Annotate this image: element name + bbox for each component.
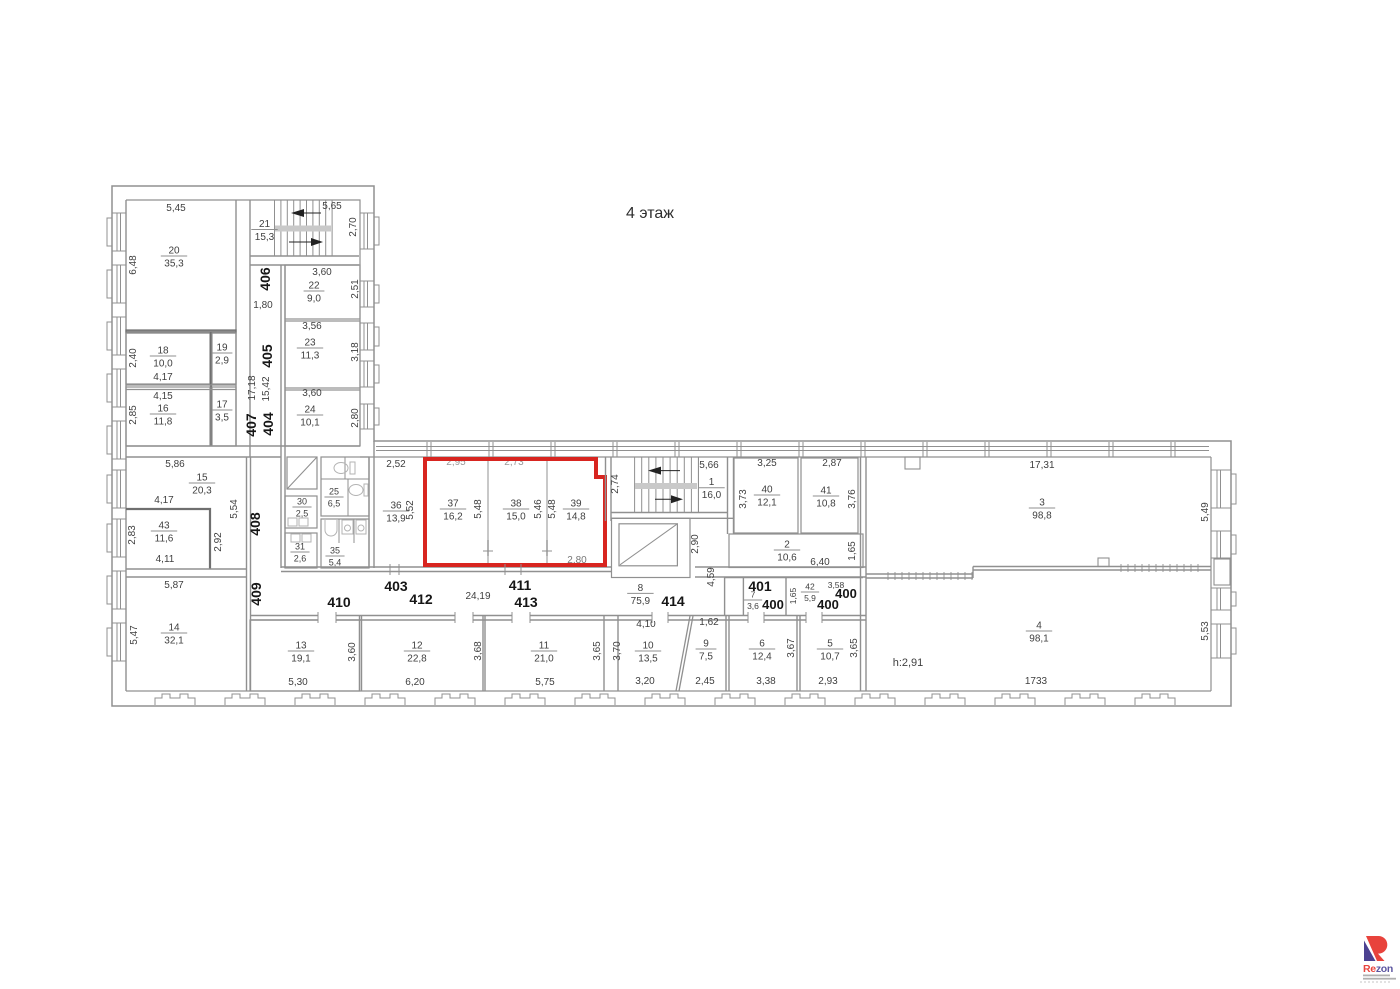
svg-text:10,1: 10,1 [300,418,320,429]
svg-text:2,40: 2,40 [128,348,139,368]
svg-text:6,40: 6,40 [810,557,830,568]
svg-text:1,65: 1,65 [847,541,858,561]
svg-text:10,7: 10,7 [820,652,840,663]
svg-text:3,25: 3,25 [757,458,777,469]
svg-text:5,49: 5,49 [1200,502,1211,522]
svg-text:3,60: 3,60 [312,267,332,278]
svg-text:9: 9 [703,639,709,650]
svg-text:42: 42 [805,582,815,592]
svg-text:17,31: 17,31 [1029,460,1054,471]
svg-text:3,18: 3,18 [350,342,361,362]
svg-text:404: 404 [260,412,276,436]
svg-text:5,75: 5,75 [535,677,555,688]
svg-text:7: 7 [751,590,756,600]
svg-text:3,38: 3,38 [756,676,776,687]
svg-text:11,6: 11,6 [155,534,174,545]
svg-text:8: 8 [638,583,644,594]
svg-text:410: 410 [327,594,351,610]
svg-text:6,5: 6,5 [328,499,341,509]
svg-text:3,70: 3,70 [612,641,623,661]
svg-text:408: 408 [247,512,263,536]
svg-text:98,1: 98,1 [1029,634,1049,645]
svg-text:12,1: 12,1 [757,498,777,509]
svg-text:20: 20 [168,246,180,257]
svg-text:35: 35 [330,546,340,556]
svg-text:403: 403 [384,578,408,594]
svg-text:25: 25 [329,487,339,497]
svg-text:407: 407 [243,413,259,437]
svg-text:411: 411 [509,577,532,593]
svg-text:2,83: 2,83 [127,525,138,545]
svg-text:2,93: 2,93 [818,676,838,687]
svg-text:40: 40 [761,485,773,496]
svg-text:5,52: 5,52 [405,500,416,520]
svg-text:11: 11 [539,641,550,652]
svg-text:5,54: 5,54 [229,499,240,519]
svg-text:24,19: 24,19 [465,591,490,602]
svg-text:38: 38 [510,499,522,510]
svg-text:405: 405 [259,344,275,368]
svg-text:6,48: 6,48 [128,255,139,275]
svg-text:4,17: 4,17 [153,372,173,383]
svg-text:3,20: 3,20 [635,676,655,687]
svg-text:17: 17 [216,400,228,411]
svg-text:36: 36 [390,501,402,512]
svg-text:19,1: 19,1 [291,654,311,665]
svg-text:2,45: 2,45 [695,676,715,687]
svg-text:13,5: 13,5 [638,654,658,665]
svg-text:4,59: 4,59 [706,567,717,587]
svg-text:2,85: 2,85 [128,405,139,425]
svg-text:10,6: 10,6 [777,553,797,564]
svg-text:4,15: 4,15 [153,391,173,402]
svg-text:2,52: 2,52 [386,459,406,470]
svg-text:5,48: 5,48 [473,499,484,519]
svg-text:16,2: 16,2 [443,512,463,523]
svg-text:1733: 1733 [1025,676,1048,687]
svg-text:3,65: 3,65 [849,638,860,658]
svg-text:24: 24 [304,405,316,416]
svg-text:1,65: 1,65 [788,587,798,604]
svg-text:10,8: 10,8 [816,499,836,510]
svg-text:412: 412 [409,591,433,607]
svg-text:14,8: 14,8 [566,512,586,523]
svg-text:2,70: 2,70 [348,217,359,237]
svg-text:5,65: 5,65 [322,201,342,212]
svg-text:3,56: 3,56 [302,321,322,332]
svg-text:5,53: 5,53 [1200,621,1211,641]
svg-text:12,4: 12,4 [752,652,772,663]
svg-text:2,92: 2,92 [213,532,224,552]
svg-text:21: 21 [259,219,271,230]
svg-text:22: 22 [308,281,320,292]
svg-text:17,18: 17,18 [247,375,258,400]
svg-text:4 этаж: 4 этаж [626,205,674,222]
svg-text:4: 4 [1036,621,1042,632]
svg-text:1,62: 1,62 [699,617,719,628]
svg-text:13: 13 [295,641,307,652]
svg-text:43: 43 [158,521,170,532]
svg-text:11,3: 11,3 [301,351,320,362]
svg-text:5,4: 5,4 [329,558,342,568]
svg-text:5,45: 5,45 [166,203,186,214]
svg-text:1,80: 1,80 [253,300,273,311]
svg-text:3,60: 3,60 [302,388,322,399]
svg-text:1: 1 [709,477,715,488]
svg-text:5,66: 5,66 [699,460,719,471]
svg-text:5: 5 [827,639,833,650]
svg-text:18: 18 [157,346,169,357]
svg-text:2,74: 2,74 [610,474,621,494]
svg-text:41: 41 [820,486,832,497]
svg-text:4,17: 4,17 [154,495,174,506]
svg-text:39: 39 [570,499,582,510]
svg-text:2,5: 2,5 [296,509,309,519]
svg-text:37: 37 [447,499,459,510]
svg-text:3: 3 [1039,498,1045,509]
svg-text:5,87: 5,87 [164,580,184,591]
svg-text:9,0: 9,0 [307,294,321,305]
svg-text:5,47: 5,47 [129,625,140,645]
svg-text:3,60: 3,60 [347,642,358,662]
svg-text:4,11: 4,11 [156,554,175,565]
svg-text:5,46: 5,46 [533,499,544,519]
svg-text:98,8: 98,8 [1032,511,1052,522]
svg-text:5,48: 5,48 [547,499,558,519]
svg-text:6,20: 6,20 [405,677,425,688]
svg-text:2,6: 2,6 [294,554,307,564]
svg-text:3,73: 3,73 [738,489,749,509]
svg-text:16,0: 16,0 [702,490,722,501]
svg-text:75,9: 75,9 [631,596,651,607]
svg-text:2,51: 2,51 [350,279,361,299]
svg-text:3,76: 3,76 [847,489,858,509]
svg-text:406: 406 [257,267,273,291]
svg-text:400: 400 [817,597,839,612]
svg-text:Rezon: Rezon [1363,963,1393,975]
svg-text:409: 409 [248,582,264,606]
svg-text:13,9: 13,9 [386,514,406,525]
svg-text:400: 400 [762,597,784,612]
svg-text:11,8: 11,8 [154,417,173,428]
svg-text:20,3: 20,3 [192,486,212,497]
svg-text:2,90: 2,90 [690,534,701,554]
svg-text:15,3: 15,3 [255,232,275,243]
svg-text:2,87: 2,87 [822,458,842,469]
svg-text:32,1: 32,1 [164,636,184,647]
svg-text:35,3: 35,3 [164,259,184,270]
svg-text:12: 12 [411,641,423,652]
svg-text:3,5: 3,5 [215,413,229,424]
svg-text:30: 30 [297,497,307,507]
svg-text:23: 23 [304,338,316,349]
svg-text:2: 2 [784,540,790,551]
svg-text:10: 10 [642,641,654,652]
svg-text:14: 14 [168,623,180,634]
svg-text:15: 15 [196,473,208,484]
svg-text:5,30: 5,30 [288,677,308,688]
svg-text:414: 414 [661,593,685,609]
svg-text:413: 413 [514,594,538,610]
svg-text:5,86: 5,86 [165,459,185,470]
svg-text:19: 19 [216,343,228,354]
svg-text:2,9: 2,9 [215,356,229,367]
svg-text:h:2,91: h:2,91 [893,657,924,669]
svg-text:10,0: 10,0 [153,359,173,370]
svg-text:7,5: 7,5 [699,652,713,663]
svg-text:6: 6 [759,639,765,650]
svg-text:21,0: 21,0 [534,654,554,665]
svg-text:22,8: 22,8 [407,654,427,665]
svg-text:3,65: 3,65 [592,641,603,661]
svg-text:15,0: 15,0 [506,512,526,523]
svg-text:16: 16 [157,404,169,415]
svg-text:15,42: 15,42 [261,376,272,401]
svg-text:3,6: 3,6 [747,601,759,611]
svg-text:5,9: 5,9 [804,593,816,603]
svg-text:3,67: 3,67 [786,638,797,658]
svg-text:31: 31 [295,542,305,552]
svg-text:2,80: 2,80 [350,408,361,428]
